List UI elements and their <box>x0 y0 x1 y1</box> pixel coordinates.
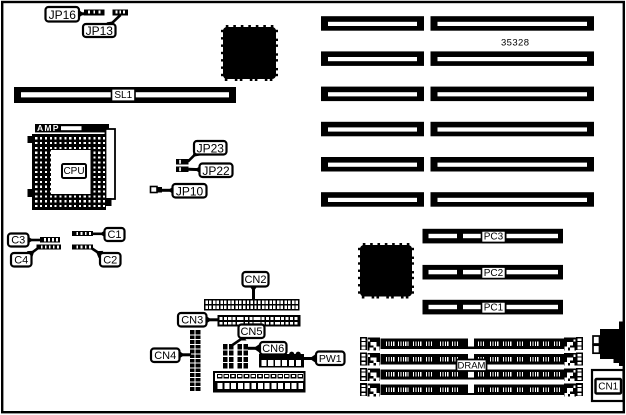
svg-text:PW1: PW1 <box>319 353 342 365</box>
svg-text:CPU: CPU <box>63 166 84 177</box>
svg-text:C2: C2 <box>103 254 117 266</box>
svg-text:JP16: JP16 <box>49 8 77 22</box>
svg-text:JP22: JP22 <box>202 164 230 178</box>
svg-text:PC2: PC2 <box>484 268 504 279</box>
svg-text:CN4: CN4 <box>154 350 176 362</box>
svg-text:C3: C3 <box>11 235 25 247</box>
svg-text:SL1: SL1 <box>114 90 132 101</box>
svg-text:DRAM: DRAM <box>458 360 486 371</box>
svg-text:AMP: AMP <box>37 123 60 133</box>
svg-text:35328: 35328 <box>501 38 529 49</box>
svg-text:C1: C1 <box>107 229 121 241</box>
svg-text:CN6: CN6 <box>262 343 284 355</box>
svg-text:CN3: CN3 <box>181 314 203 326</box>
svg-text:JP23: JP23 <box>197 141 225 155</box>
svg-text:JP10: JP10 <box>176 184 204 198</box>
svg-text:CN1: CN1 <box>598 381 618 392</box>
svg-text:C4: C4 <box>14 254 28 266</box>
svg-text:CN5: CN5 <box>240 326 262 338</box>
svg-text:CN2: CN2 <box>244 274 266 286</box>
svg-text:PC1: PC1 <box>484 303 504 314</box>
svg-text:JP13: JP13 <box>86 24 114 38</box>
svg-text:PC3: PC3 <box>484 232 504 243</box>
